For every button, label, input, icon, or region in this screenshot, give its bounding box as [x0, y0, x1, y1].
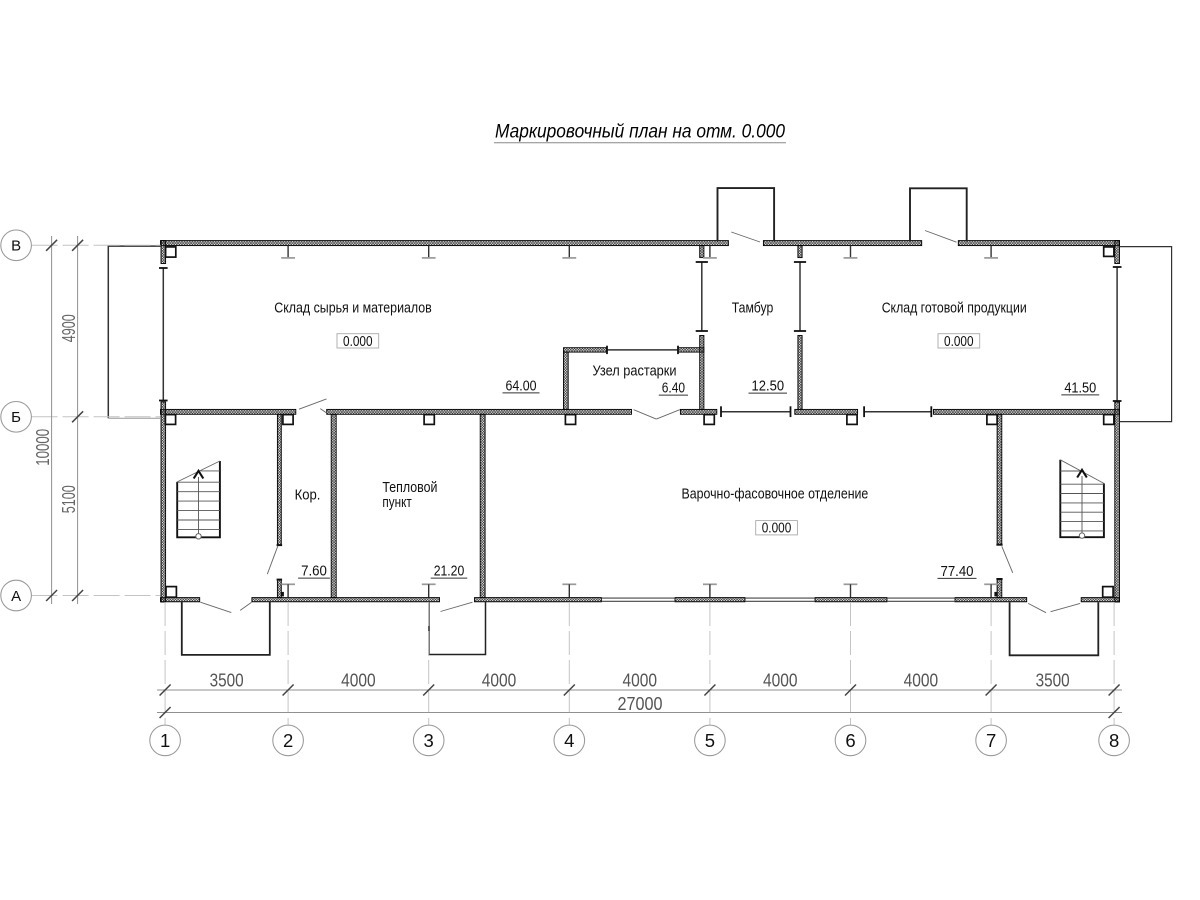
svg-text:21.20: 21.20 [434, 563, 465, 580]
svg-text:4: 4 [564, 730, 574, 751]
svg-text:5100: 5100 [59, 485, 79, 513]
svg-text:4000: 4000 [904, 670, 939, 691]
svg-text:1: 1 [160, 730, 170, 751]
svg-text:7.60: 7.60 [301, 563, 327, 580]
svg-text:0.000: 0.000 [944, 333, 974, 350]
svg-text:2: 2 [283, 730, 293, 751]
svg-text:Склад готовой продукции: Склад готовой продукции [882, 299, 1027, 316]
svg-text:8: 8 [1109, 730, 1119, 751]
svg-text:4000: 4000 [622, 670, 657, 691]
svg-text:6.40: 6.40 [662, 380, 685, 397]
svg-text:Узел растарки: Узел растарки [593, 363, 677, 380]
svg-text:27000: 27000 [618, 693, 663, 714]
svg-text:10000: 10000 [33, 429, 53, 466]
svg-text:Кор.: Кор. [295, 487, 321, 504]
svg-text:пункт: пункт [382, 494, 411, 511]
svg-text:Склад сырья и материалов: Склад сырья и материалов [274, 299, 432, 316]
svg-text:3: 3 [424, 730, 434, 751]
svg-text:6: 6 [845, 730, 855, 751]
svg-text:12.50: 12.50 [752, 378, 785, 395]
svg-text:0.000: 0.000 [762, 520, 792, 537]
svg-text:7: 7 [986, 730, 996, 751]
svg-text:77.40: 77.40 [941, 563, 974, 580]
svg-text:4900: 4900 [59, 314, 79, 342]
svg-text:4000: 4000 [341, 670, 376, 691]
svg-text:Маркировочный план на отм. 0.0: Маркировочный план на отм. 0.000 [495, 122, 785, 143]
svg-text:4000: 4000 [482, 670, 517, 691]
svg-text:Тамбур: Тамбур [732, 299, 774, 316]
svg-text:4000: 4000 [763, 670, 798, 691]
svg-text:Варочно-фасовочное отделение: Варочно-фасовочное отделение [682, 486, 869, 503]
svg-text:3500: 3500 [210, 670, 244, 691]
svg-text:5: 5 [705, 730, 715, 751]
svg-text:0.000: 0.000 [343, 333, 373, 350]
svg-text:В: В [11, 238, 21, 255]
svg-text:41.50: 41.50 [1064, 379, 1096, 396]
svg-text:3500: 3500 [1036, 670, 1070, 691]
svg-text:Б: Б [11, 409, 21, 426]
svg-text:64.00: 64.00 [506, 377, 537, 394]
svg-text:А: А [11, 588, 21, 605]
